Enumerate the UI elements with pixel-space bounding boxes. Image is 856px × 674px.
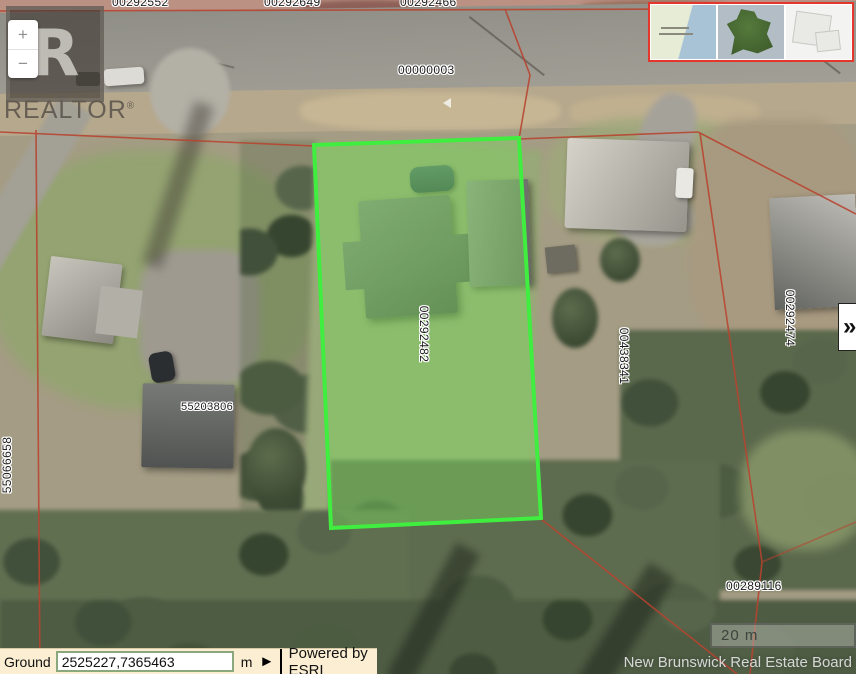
parcel-label: 00292474: [783, 290, 797, 347]
road-label: 00000003: [398, 63, 455, 77]
attribution-text: New Brunswick Real Estate Board: [624, 654, 852, 671]
expand-panel-button[interactable]: »: [838, 303, 856, 351]
basemap-option-imagery[interactable]: [718, 5, 783, 59]
coordinate-toolbar: Ground m ► Powered by ESRI: [0, 648, 377, 674]
parcel-label: 00292649: [264, 0, 321, 9]
map-outline: [815, 30, 841, 52]
white-car: [103, 67, 144, 87]
parcel-label: 00438341: [617, 328, 631, 385]
unit-label: m: [241, 654, 253, 670]
aerial-lawn: [740, 430, 856, 550]
zoom-out-button[interactable]: −: [8, 50, 38, 79]
province-shape-icon: [724, 7, 779, 57]
tree: [552, 288, 598, 348]
house-wing: [95, 286, 143, 339]
parcel-label: 55066658: [0, 437, 14, 494]
zoom-in-button[interactable]: +: [8, 20, 38, 50]
tree: [246, 428, 306, 508]
tree: [600, 238, 640, 282]
house-roof: [564, 138, 689, 232]
parcel-label: 00289116: [726, 579, 782, 593]
map-text-line: [661, 27, 689, 29]
highlighted-parcel-label: 00292482: [417, 306, 431, 363]
scale-bar-label: 20 m: [721, 627, 758, 644]
double-chevron-right-icon: »: [843, 315, 856, 339]
basemap-option-streets[interactable]: [651, 5, 716, 59]
parked-car: [148, 350, 177, 384]
small-shed: [545, 245, 578, 274]
map-viewport[interactable]: 00292552 00292649 00292466 00000003 0029…: [0, 0, 856, 674]
aerial-sand-patch: [300, 92, 560, 130]
go-to-coordinate-button[interactable]: ►: [259, 654, 280, 669]
parcel-label: 55203806: [181, 401, 233, 413]
coordinate-input[interactable]: [56, 651, 234, 672]
garage-roof: [141, 383, 234, 469]
basemap-selector[interactable]: [648, 2, 854, 62]
parcel-label: 00292552: [112, 0, 169, 9]
parked-car: [675, 168, 694, 199]
dark-car: [76, 72, 100, 86]
scale-bar: 20 m: [710, 623, 856, 648]
parcel-label: 00292466: [400, 0, 457, 9]
zoom-control: + −: [8, 20, 38, 78]
basemap-option-topo[interactable]: [786, 5, 851, 59]
coordinate-system-label: Ground: [4, 654, 51, 670]
road-marking-arrow: [443, 98, 451, 108]
map-text-line: [659, 33, 693, 35]
powered-by-esri-label: Powered by ESRI: [282, 645, 377, 674]
